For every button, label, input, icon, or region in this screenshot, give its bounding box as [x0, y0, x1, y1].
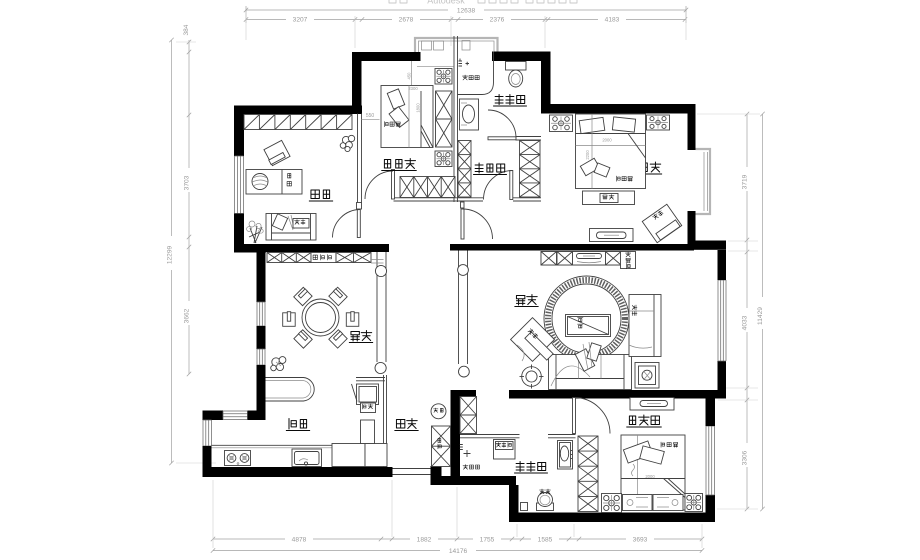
svg-text:Autodesk: Autodesk — [427, 0, 465, 6]
svg-text:450: 450 — [407, 72, 412, 80]
svg-text:3719: 3719 — [742, 174, 749, 189]
svg-text:12638: 12638 — [457, 8, 476, 15]
svg-text:384: 384 — [183, 24, 190, 35]
svg-text:4183: 4183 — [605, 17, 620, 24]
svg-text:3207: 3207 — [293, 17, 308, 24]
svg-text:2376: 2376 — [490, 17, 505, 24]
svg-text:2200: 2200 — [585, 150, 590, 160]
svg-text:1882: 1882 — [417, 537, 432, 544]
svg-text:1585: 1585 — [538, 537, 553, 544]
svg-text:4033: 4033 — [742, 315, 749, 330]
svg-text:3662: 3662 — [184, 308, 191, 323]
svg-text:11429: 11429 — [757, 307, 764, 325]
svg-text:2300: 2300 — [408, 86, 418, 91]
svg-text:4878: 4878 — [292, 537, 307, 544]
svg-text:1800: 1800 — [416, 103, 421, 113]
svg-text:3693: 3693 — [633, 537, 648, 544]
svg-text:2000: 2000 — [602, 138, 612, 143]
svg-text:3703: 3703 — [184, 175, 191, 190]
svg-text:3306: 3306 — [742, 450, 749, 465]
svg-text:550: 550 — [366, 113, 375, 119]
svg-text:12299: 12299 — [167, 246, 174, 265]
svg-text:1755: 1755 — [480, 537, 495, 544]
svg-text:14176: 14176 — [449, 548, 468, 555]
svg-text:2678: 2678 — [399, 17, 414, 24]
